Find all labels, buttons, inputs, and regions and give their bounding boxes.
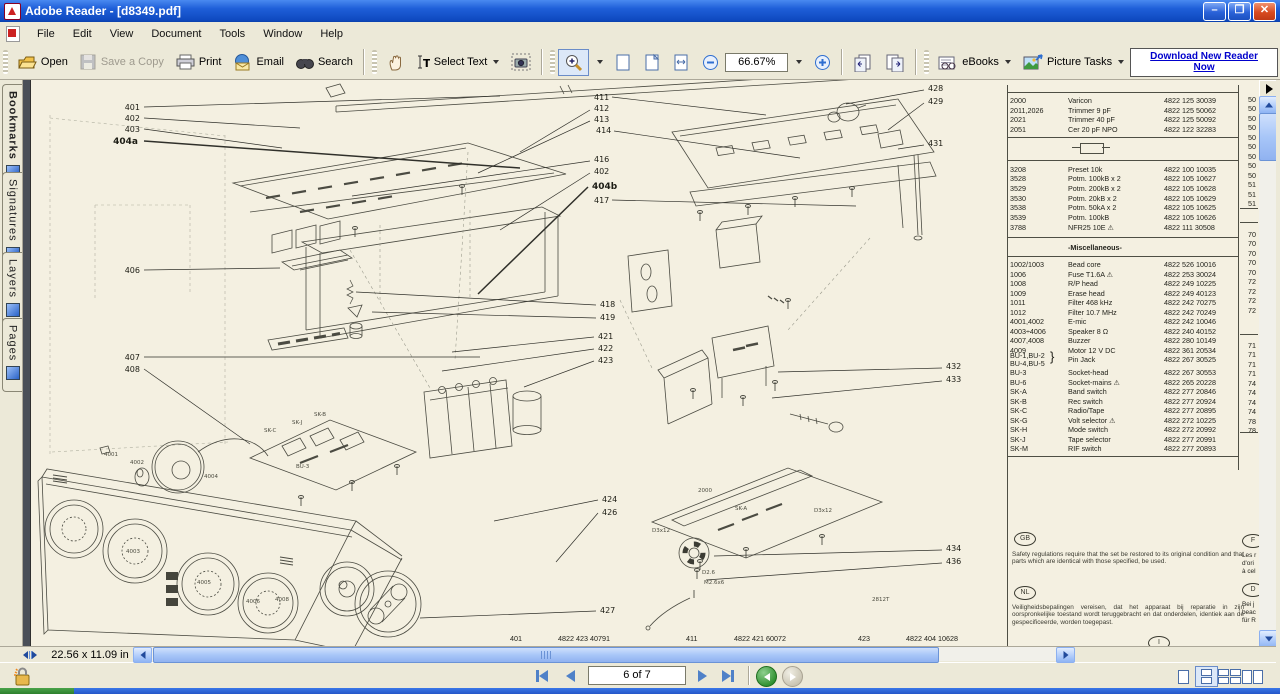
fit-page-button[interactable] — [638, 49, 667, 76]
part-desc: Tape selector — [1068, 435, 1111, 444]
table-rule — [1072, 147, 1080, 148]
window-title: Adobe Reader - [d8349.pdf] — [25, 4, 181, 18]
part-code: 4822 277 20991 — [1164, 435, 1216, 444]
part-code: 4822 242 70275 — [1164, 298, 1216, 307]
part-ref: 1002/1003 — [1010, 260, 1044, 269]
part-code: 4822 280 10149 — [1164, 336, 1216, 345]
menu-document[interactable]: Document — [142, 25, 210, 43]
part-code: 4822 125 50062 — [1164, 106, 1216, 115]
cut-part-number: 70 — [1240, 249, 1256, 258]
callout-label: 404a — [113, 137, 138, 147]
callout-leader — [144, 129, 282, 148]
part-ref: 4007,4008 — [1010, 336, 1044, 345]
callout-leader — [612, 97, 766, 115]
select-text-button[interactable]: T Select Text — [409, 50, 506, 74]
table-rule — [1007, 237, 1238, 238]
callout-label: 429 — [928, 97, 943, 106]
micro-part-label: 4002 — [130, 460, 144, 466]
part-desc: Preset 10k — [1068, 165, 1102, 174]
part-desc: Potm. 100kB — [1068, 213, 1109, 222]
ebooks-dropdown[interactable] — [1005, 60, 1011, 64]
part-code: 4822 253 30024 — [1164, 270, 1216, 279]
callout-label: 401 — [125, 103, 140, 112]
safety-note-nl: Veiligheidsbepalingen vereisen, dat het … — [1012, 604, 1244, 626]
callout-label: 422 — [598, 344, 613, 353]
part-ref: SK-A — [1010, 387, 1027, 396]
cut-part-number: 50 — [1240, 104, 1256, 113]
zoom-in-icon — [564, 53, 583, 72]
callout-label: 414 — [596, 126, 611, 135]
menu-bar: FileEditViewDocumentToolsWindowHelp — [0, 22, 1280, 46]
part-desc: Cer 20 pF NPO — [1068, 125, 1118, 134]
email-label: Email — [256, 56, 284, 68]
cut-part-number: 71 — [1240, 360, 1256, 369]
cut-part-number: 70 — [1240, 258, 1256, 267]
navigation-tab-strip: BookmarksSignaturesLayersPages — [0, 79, 23, 646]
zoom-in-tool-button[interactable] — [558, 49, 589, 76]
document-gutter — [22, 79, 30, 646]
tab-bookmarks[interactable]: Bookmarks — [2, 84, 22, 180]
tab-pages[interactable]: Pages — [2, 318, 22, 392]
toolbar-grip[interactable] — [3, 50, 8, 74]
download-label: Download New ReaderNow — [1150, 51, 1258, 73]
cut-part-number: 50 — [1240, 133, 1256, 142]
part-ref: 2011,2026 — [1010, 106, 1043, 115]
title-bar[interactable]: Adobe Reader - [d8349.pdf] – ❐ ✕ — [0, 0, 1280, 22]
callout-leader — [352, 161, 590, 196]
cut-part-number: 51 — [1240, 199, 1256, 208]
footer-code: 4822 423 40791 — [558, 634, 610, 643]
adobe-reader-app-icon — [4, 3, 21, 20]
micro-part-label: 2812T — [872, 597, 890, 603]
callout-leader — [772, 381, 942, 398]
search-label: Search — [318, 56, 353, 68]
svg-text:T: T — [423, 57, 430, 70]
cut-part-number: 72 — [1240, 296, 1256, 305]
part-ref: 3539 — [1010, 213, 1026, 222]
first-page-button[interactable] — [530, 667, 554, 685]
open-button[interactable]: Open — [11, 50, 74, 75]
scroll-left-button[interactable] — [133, 647, 152, 663]
micro-part-label: D2.6 — [702, 570, 715, 576]
part-code: 4822 265 20228 — [1164, 378, 1216, 387]
part-ref: 2021 — [1010, 115, 1026, 124]
part-desc: Buzzer — [1068, 336, 1090, 345]
vertical-scrollbar[interactable] — [1259, 96, 1276, 646]
table-rule — [1238, 85, 1239, 470]
part-code: 4822 242 10046 — [1164, 317, 1216, 326]
restore-button[interactable]: ❐ — [1228, 2, 1251, 21]
callout-label: 404b — [592, 182, 618, 192]
footer-ref: 411 — [686, 634, 697, 643]
callout-label: 402 — [594, 167, 609, 176]
part-ref: 1012 — [1010, 308, 1026, 317]
cut-part-number: 50 — [1240, 152, 1256, 161]
part-ref: 1011 — [1010, 298, 1025, 307]
callout-label: 413 — [594, 115, 609, 124]
part-code: 4822 277 20846 — [1164, 387, 1216, 396]
cut-part-number: 70 — [1240, 239, 1256, 248]
callout-label: 411 — [594, 93, 609, 102]
callout-label: 403 — [125, 125, 140, 134]
main-toolbar: Open Save a Copy Print Email Search — [0, 45, 1280, 80]
callout-leader — [478, 187, 588, 294]
callout-leader — [898, 145, 924, 149]
fit-width-button[interactable] — [667, 49, 696, 76]
micro-part-label: D3x12 — [652, 528, 670, 534]
part-desc: Potm. 200kB x 2 — [1068, 184, 1121, 193]
search-button[interactable]: Search — [290, 51, 359, 74]
note-f-line: à cel — [1242, 568, 1256, 575]
cut-part-number: 50 — [1240, 142, 1256, 151]
callout-label: 407 — [125, 353, 140, 362]
part-ref: 3208 — [1010, 165, 1026, 174]
part-ref: SK-H — [1010, 425, 1027, 434]
part-desc: Mode switch — [1068, 425, 1108, 434]
part-ref: 4003÷4006 — [1010, 327, 1046, 336]
select-text-dropdown[interactable] — [493, 60, 499, 64]
last-page-button[interactable] — [716, 667, 740, 685]
cut-part-number: 70 — [1240, 230, 1256, 239]
zoom-in-plus-icon — [814, 54, 831, 71]
table-rule — [1240, 222, 1258, 223]
callout-leader — [556, 513, 598, 562]
print-button[interactable]: Print — [170, 50, 228, 74]
table-rule — [1240, 334, 1258, 335]
part-code: 4822 272 10225 — [1164, 416, 1216, 425]
print-icon — [176, 54, 195, 70]
part-ref: SK-G — [1010, 416, 1028, 425]
picture-tasks-label: Picture Tasks — [1047, 56, 1112, 68]
part-desc: Band switch — [1068, 387, 1107, 396]
micro-part-label: 4004 — [204, 474, 218, 480]
part-code: 4822 267 30553 — [1164, 368, 1216, 377]
part-desc: Potm. 50kA x 2 — [1068, 203, 1116, 212]
start-button[interactable] — [0, 688, 74, 694]
single-page-layout-button[interactable] — [1172, 666, 1195, 687]
picture-tasks-icon — [1023, 54, 1043, 71]
cut-part-number: 71 — [1240, 369, 1256, 378]
tab-layers[interactable]: Layers — [2, 252, 22, 326]
table-rule — [1007, 137, 1238, 138]
part-desc: Bead core — [1068, 260, 1101, 269]
callout-leader — [846, 90, 924, 104]
callout-leader — [524, 361, 594, 387]
callout-leader — [144, 141, 520, 168]
toolbar-grip[interactable] — [550, 50, 555, 74]
callout-label: 426 — [602, 508, 617, 517]
table-rule — [1007, 92, 1238, 93]
brace: } — [1050, 349, 1054, 364]
cut-part-number: 51 — [1240, 190, 1256, 199]
part-code: 4822 105 10627 — [1164, 174, 1216, 183]
hand-tool-button[interactable] — [380, 49, 409, 75]
facing-layout-button[interactable] — [1241, 666, 1264, 687]
part-ref: BU-3 — [1010, 368, 1026, 377]
cut-part-number: 51 — [1240, 180, 1256, 189]
toolbar-grip[interactable] — [924, 50, 929, 74]
cut-part-number: 71 — [1240, 341, 1256, 350]
note-d-line: Bei j — [1242, 601, 1254, 608]
picture-tasks-dropdown[interactable] — [1118, 60, 1124, 64]
part-desc: Potm. 20kB x 2 — [1068, 194, 1117, 203]
layers-icon — [6, 303, 20, 317]
part-code: 4822 277 20924 — [1164, 397, 1216, 406]
footer-code: 4822 421 60072 — [734, 634, 786, 643]
micro-part-label: SK-A — [735, 506, 747, 512]
email-button[interactable]: Email — [227, 50, 290, 75]
callout-leader — [706, 563, 942, 580]
part-ref: SK-M — [1010, 444, 1028, 453]
part-ref: 3529 — [1010, 184, 1026, 193]
callout-leader — [144, 268, 280, 270]
part-ref: 1009 — [1010, 289, 1026, 298]
part-code: 4822 122 32283 — [1164, 125, 1216, 134]
next-page-icon — [885, 53, 905, 72]
picture-tasks-button[interactable]: Picture Tasks — [1017, 50, 1130, 75]
menu-view[interactable]: View — [101, 25, 143, 43]
menu-window[interactable]: Window — [254, 25, 311, 43]
part-code: 4822 249 40123 — [1164, 289, 1216, 298]
part-desc: Potm. 100kB x 2 — [1068, 174, 1121, 183]
callout-label: 412 — [594, 104, 609, 113]
fit-width-page-icon — [673, 53, 690, 72]
horizontal-scroll-thumb[interactable] — [153, 647, 939, 663]
callout-label: 416 — [594, 155, 609, 164]
part-code: 4822 267 30525 — [1164, 355, 1216, 364]
resistor-symbol — [1080, 143, 1104, 154]
part-desc: Filter 468 kHz — [1068, 298, 1112, 307]
snapshot-camera-icon — [511, 53, 531, 71]
zoom-percent-field[interactable]: 66.67% — [725, 53, 788, 72]
download-new-reader-button[interactable]: Download New ReaderNow — [1130, 48, 1278, 77]
callout-leader — [144, 369, 250, 444]
menu-help[interactable]: Help — [311, 25, 352, 43]
part-desc: Varicon — [1068, 96, 1092, 105]
part-desc: Socket-mains ⚠ — [1068, 378, 1120, 387]
micro-part-label: SK-J — [292, 420, 303, 426]
footer-code: 4822 404 10628 — [906, 634, 958, 643]
micro-part-label: 2000 — [698, 488, 712, 494]
close-button[interactable]: ✕ — [1253, 2, 1276, 21]
table-rule — [1007, 256, 1238, 257]
note-d-line: beac — [1242, 609, 1256, 616]
save-a-copy-button[interactable]: Save a Copy — [74, 50, 170, 74]
cut-part-number: 74 — [1240, 398, 1256, 407]
next-page-button[interactable] — [692, 667, 712, 685]
callout-leader — [478, 121, 590, 173]
micro-part-label: 4006 — [246, 599, 260, 605]
next-view-button[interactable] — [782, 666, 803, 687]
part-desc: NFR25 10E ⚠ — [1068, 223, 1114, 232]
ebooks-button[interactable]: eBooks — [932, 50, 1017, 75]
callout-leader — [420, 611, 596, 618]
windows-taskbar[interactable] — [0, 688, 1280, 694]
table-rule — [1007, 456, 1238, 457]
page-number-field[interactable]: 6 of 7 — [588, 666, 686, 685]
part-code: 4822 242 70249 — [1164, 308, 1216, 317]
splitter-handle[interactable] — [23, 649, 37, 661]
save-icon — [80, 54, 97, 70]
part-desc: Socket-head — [1068, 368, 1108, 377]
scroll-right-button[interactable] — [1056, 647, 1075, 663]
cut-part-number: 50 — [1240, 95, 1256, 104]
actual-size-button[interactable] — [609, 49, 638, 76]
secure-lock-icon — [12, 666, 34, 686]
cut-part-number: 78 — [1240, 426, 1256, 435]
part-desc: Trimmer 9 pF — [1068, 106, 1111, 115]
callout-leader — [714, 550, 942, 556]
cut-part-number: 72 — [1240, 306, 1256, 315]
callout-label: 423 — [598, 356, 613, 365]
cut-part-number: 74 — [1240, 407, 1256, 416]
select-text-label: Select Text — [434, 56, 488, 68]
next-view-page-button[interactable] — [879, 49, 911, 76]
safety-note-gb: Safety regulations require that the set … — [1012, 551, 1244, 566]
part-ref: 2051 — [1010, 125, 1026, 134]
ebooks-icon — [938, 54, 958, 71]
callout-label: 408 — [125, 365, 140, 374]
note-f-line: d'ori — [1242, 560, 1254, 567]
adobe-reader-window: { "window": {"title": "Adobe Reader - [d… — [0, 0, 1280, 694]
previous-page-button[interactable] — [560, 667, 580, 685]
part-code: 4822 105 10629 — [1164, 194, 1216, 203]
save-label: Save a Copy — [101, 56, 164, 68]
callout-label: 431 — [928, 139, 943, 148]
cut-part-number: 78 — [1240, 417, 1256, 426]
snapshot-button[interactable] — [505, 49, 537, 75]
callout-label: 427 — [600, 606, 615, 615]
part-ref: 2000 — [1010, 96, 1026, 105]
part-desc: Fuse T1.6A ⚠ — [1068, 270, 1113, 279]
callout-leader — [372, 312, 596, 318]
part-desc: Rec switch — [1068, 397, 1103, 406]
micro-part-label: SK-C — [264, 428, 277, 434]
part-code: 4822 125 30039 — [1164, 96, 1216, 105]
callout-leader — [442, 349, 594, 371]
actual-size-page-icon — [615, 53, 632, 72]
zoom-in-button[interactable] — [808, 50, 837, 75]
callout-label: 434 — [946, 544, 961, 553]
callout-leader — [144, 118, 300, 128]
continuous-facing-layout-button[interactable] — [1218, 666, 1241, 687]
micro-part-label: 4008 — [275, 597, 289, 603]
callout-leader — [614, 131, 800, 158]
cut-part-number: 74 — [1240, 388, 1256, 397]
cut-part-number: 72 — [1240, 277, 1256, 286]
part-desc: Volt selector ⚠ — [1068, 416, 1116, 425]
callout-label: 432 — [946, 362, 961, 371]
part-code: 4822 249 10225 — [1164, 279, 1216, 288]
part-desc: R/P head — [1068, 279, 1098, 288]
part-ref: 3538 — [1010, 203, 1026, 212]
footer-ref: 423 — [858, 634, 870, 643]
tab-signatures[interactable]: Signatures — [2, 172, 22, 260]
window-frame — [1276, 22, 1280, 688]
zoom-out-button[interactable] — [696, 50, 725, 75]
print-label: Print — [199, 56, 222, 68]
menu-file[interactable]: File — [28, 25, 64, 43]
table-rule — [1240, 208, 1258, 209]
previous-view-page-button[interactable] — [847, 49, 879, 76]
micro-part-label: D3x12 — [814, 508, 832, 514]
micro-part-label: 4003 — [126, 549, 140, 555]
part-desc: Pin Jack — [1068, 355, 1095, 364]
part-code: 4822 277 20895 — [1164, 406, 1216, 415]
miscellaneous-header: -Miscellaneous- — [1068, 243, 1122, 252]
part-ref: SK-C — [1010, 406, 1027, 415]
part-code: 4822 361 20534 — [1164, 346, 1216, 355]
callout-label: 436 — [946, 557, 961, 566]
minimize-button[interactable]: – — [1203, 2, 1226, 21]
part-ref: 3788 — [1010, 223, 1026, 232]
previous-view-button[interactable] — [756, 666, 777, 687]
search-binoculars-icon — [296, 55, 314, 70]
cut-part-number: 50 — [1240, 123, 1256, 132]
table-rule — [1007, 160, 1238, 161]
page-size-indicator: 22.56 x 11.09 in — [40, 649, 140, 661]
lang-badge-nl: NL — [1014, 586, 1036, 600]
callout-label: 433 — [946, 375, 961, 384]
toolbar-grip[interactable] — [372, 50, 377, 74]
menu-items: FileEditViewDocumentToolsWindowHelp — [28, 28, 352, 40]
part-ref: SK-B — [1010, 397, 1027, 406]
open-label: Open — [41, 56, 68, 68]
zoom-tool-dropdown[interactable] — [589, 56, 609, 68]
callout-label: 417 — [594, 196, 609, 205]
note-d-line: für R — [1242, 617, 1256, 624]
part-code: 4822 125 50092 — [1164, 115, 1216, 124]
callout-label: 428 — [928, 84, 943, 93]
part-ref: BU-6 — [1010, 378, 1026, 387]
part-desc: Radio/Tape — [1068, 406, 1104, 415]
cut-part-number: 71 — [1240, 350, 1256, 359]
part-desc: RIF switch — [1068, 444, 1102, 453]
ebooks-label: eBooks — [962, 56, 999, 68]
part-desc: Speaker 8 Ω — [1068, 327, 1108, 336]
callout-leader — [494, 500, 598, 521]
select-text-icon: T — [415, 54, 430, 70]
part-desc: Erase head — [1068, 289, 1105, 298]
note-f-line: Les r — [1242, 552, 1256, 559]
part-desc: Motor 12 V DC — [1068, 346, 1116, 355]
callout-label: 419 — [600, 313, 615, 322]
menu-edit[interactable]: Edit — [64, 25, 101, 43]
callout-label: 424 — [602, 495, 617, 504]
part-desc: Trimmer 40 pF — [1068, 115, 1115, 124]
part-code: 4822 526 10016 — [1164, 260, 1216, 269]
exploded-parts-diagram: 401402403404a406407408411412413414416402… — [30, 79, 1007, 646]
callout-label: 402 — [125, 114, 140, 123]
part-code: 4822 272 20992 — [1164, 425, 1216, 434]
callout-leader — [888, 103, 924, 130]
fit-page-icon — [644, 53, 661, 72]
continuous-layout-button[interactable] — [1195, 666, 1218, 687]
part-ref: 4001,4002 — [1010, 317, 1044, 326]
table-rule — [1007, 85, 1008, 646]
micro-part-label: M2.6x6 — [704, 580, 725, 586]
zoom-percent-dropdown[interactable] — [788, 56, 808, 68]
document-icon — [6, 26, 20, 42]
cut-part-number: 70 — [1240, 268, 1256, 277]
callout-leader — [452, 337, 594, 352]
cut-part-number: 50 — [1240, 161, 1256, 170]
part-desc: Filter 10.7 MHz — [1068, 308, 1117, 317]
part-ref: 3530 — [1010, 194, 1026, 203]
menu-tools[interactable]: Tools — [211, 25, 255, 43]
callout-leader — [520, 110, 590, 152]
callout-label: 406 — [125, 266, 140, 275]
